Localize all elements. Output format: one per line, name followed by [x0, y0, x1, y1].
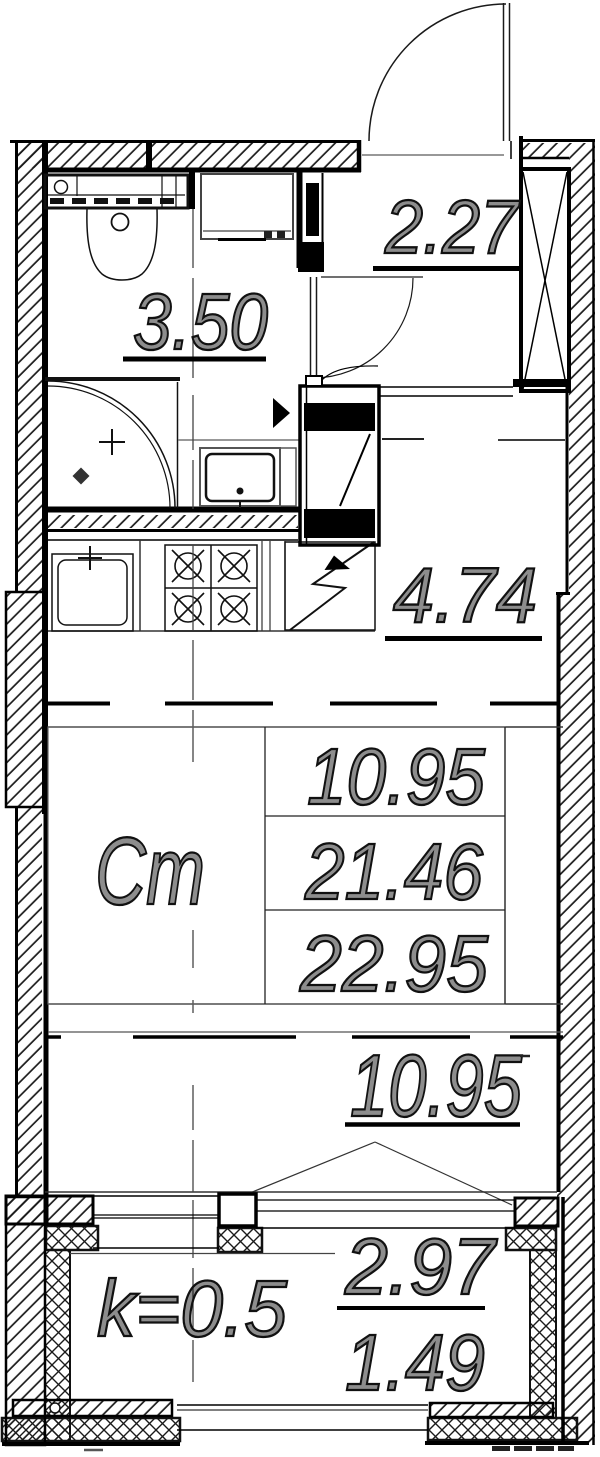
svg-text:Ст: Ст: [95, 818, 205, 925]
svg-text:2.97: 2.97: [344, 1222, 497, 1311]
svg-text:10.95: 10.95: [307, 732, 485, 821]
svg-text:22.95: 22.95: [299, 919, 488, 1008]
svg-text:21.46: 21.46: [304, 827, 483, 916]
svg-text:3.50: 3.50: [133, 277, 268, 366]
svg-text:k=0.5: k=0.5: [97, 1264, 287, 1353]
svg-text:1.49: 1.49: [345, 1318, 485, 1407]
svg-text:4.74: 4.74: [393, 551, 537, 639]
svg-text:10.95: 10.95: [350, 1036, 523, 1135]
svg-text:2.27: 2.27: [384, 185, 520, 270]
